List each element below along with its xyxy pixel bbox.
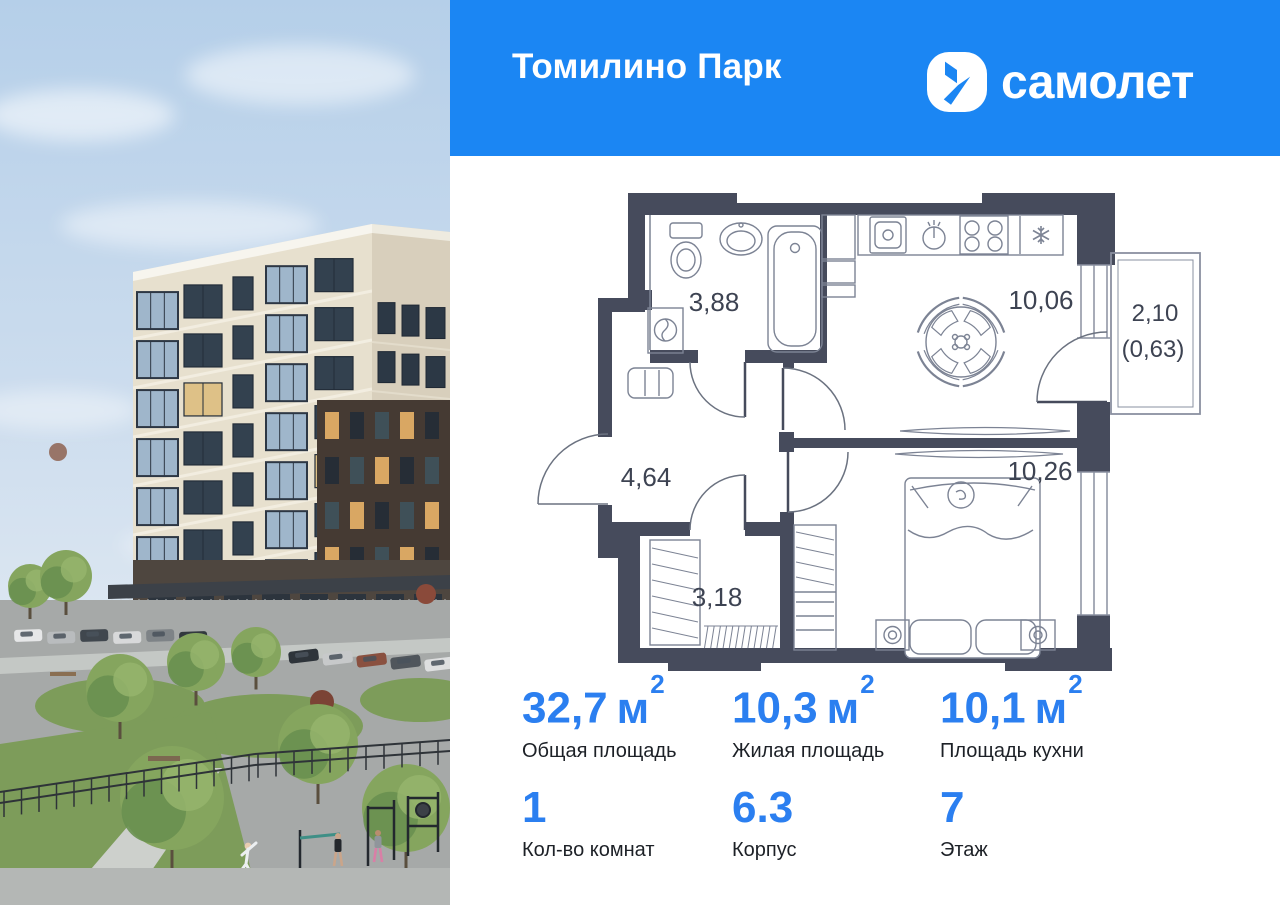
building-window [402,305,419,336]
hanger-tick [736,626,740,648]
building-window [425,412,439,439]
car [47,631,75,644]
hanger-tick [760,626,764,648]
sink-icon [720,223,762,255]
stat-value: 10,1м2 [940,676,1180,731]
balcony-window [266,266,307,303]
balcony-window [266,413,307,450]
building-window [350,412,364,439]
building-window [325,412,339,439]
wardrobe-hatch-line [652,548,698,558]
brand-logo: самолет [927,51,1194,113]
building-photo-render [0,0,450,905]
hanger-tick [773,626,777,648]
balcony-window [137,390,178,427]
car [14,629,42,642]
building-window [375,457,389,484]
building-window [425,502,439,529]
building-window [233,326,253,359]
hanger-tick [729,626,733,648]
bench [50,672,76,676]
car [146,629,174,642]
building-window [325,457,339,484]
stat-korpus: 6.3 Корпус [732,786,972,862]
nightstand-icon [876,620,909,650]
building-window [233,424,253,457]
toilet-bowl [671,242,701,278]
floor-plan: 3,88 10,06 4,64 3,18 10,26 2,10 (0,63) [520,190,1210,675]
project-title: Томилино Парк [512,47,782,87]
building-window [325,502,339,529]
stat-label: Жилая площадь [732,740,972,763]
stat-label: Общая площадь [522,740,762,763]
bench-icon [628,368,673,398]
stat-total-area: 32,7м2 Общая площадь [522,676,762,763]
balcony-window [266,364,307,401]
room-label-bedroom: 10,26 [1007,456,1072,486]
workout-wheel [416,803,430,817]
toilet-icon [670,223,702,238]
wardrobe-hatch-line [652,628,698,638]
building-window [233,473,253,506]
closet-hatch-line [796,532,834,540]
samolet-logo-icon [927,52,987,112]
hanger-tick [705,626,709,648]
stat-label: Корпус [732,839,972,862]
window-bedroom [1077,472,1110,615]
hanger-tick [754,626,758,648]
brand-name: самолет [1001,55,1194,110]
balcony-window [137,341,178,378]
building-window [378,352,395,383]
building-window [375,502,389,529]
room-label-hallway: 4,64 [621,462,672,492]
balcony-window [137,488,178,525]
room-label-balcony-area: 2,10 [1132,300,1179,327]
hanger-tick [723,626,727,648]
stat-label: Кол-во комнат [522,839,762,862]
room-label-bathroom: 3,88 [689,287,740,317]
header: Томилино Парк самолет [450,0,1280,156]
closet-hatch-line [796,562,834,570]
hanger-tick [767,626,771,648]
building-window [233,277,253,310]
building-window [350,457,364,484]
balcony-window [137,439,178,476]
stat-kitchen-area: 10,1м2 Площадь кухни [940,676,1180,763]
hanger-tick [742,626,746,648]
window-kitchen [1077,265,1110,338]
balcony-outline [1111,253,1200,414]
building-window [378,303,395,334]
foreground-pavement [0,868,450,905]
balcony-window [266,315,307,352]
fridge-snowflake-icon [1033,226,1049,244]
balcony-window [137,292,178,329]
hanger-tick [748,626,752,648]
stat-label: Этаж [940,839,1180,862]
wardrobe-hatch-line [652,564,698,574]
room-label-kitchen: 10,06 [1008,285,1073,315]
stat-label: Площадь кухни [940,740,1180,763]
car [113,631,141,644]
stat-rooms: 1 Кол-во комнат [522,786,762,862]
hanger-tick [717,626,721,648]
stat-floor: 7 Этаж [940,786,1180,862]
building-window [400,502,414,529]
closet-icon [794,525,836,650]
closet-hatch-line [796,577,834,585]
building-window [400,457,414,484]
building-window [402,354,419,385]
balcony-window [266,511,307,548]
building-window [400,412,414,439]
room-label-wardrobe: 3,18 [692,582,743,612]
room-label-balcony-reduced: (0,63) [1122,336,1185,363]
building-window [425,457,439,484]
building-window [350,502,364,529]
stat-value: 1 [522,786,762,830]
building-photo [0,0,450,905]
wardrobe-hatch-line [652,612,698,622]
stat-value: 6.3 [732,786,972,830]
stat-value: 10,3м2 [732,676,972,731]
building-window [233,375,253,408]
car [80,629,108,642]
building-window [233,522,253,555]
stat-value: 32,7м2 [522,676,762,731]
washing-machine-icon [648,308,683,353]
stat-living-area: 10,3м2 Жилая площадь [732,676,972,763]
hanger-tick [711,626,715,648]
listing-card: Томилино Парк самолет [0,0,1280,905]
building-window [375,412,389,439]
closet-hatch-line [796,547,834,555]
bench [148,756,180,761]
dining-table-icon [926,307,996,377]
samolet-arrow-icon [927,52,987,112]
building-window [426,308,445,339]
bathtub-icon [768,226,822,352]
balcony-window [266,462,307,499]
stat-value: 7 [940,786,1180,830]
building-window [426,357,445,388]
